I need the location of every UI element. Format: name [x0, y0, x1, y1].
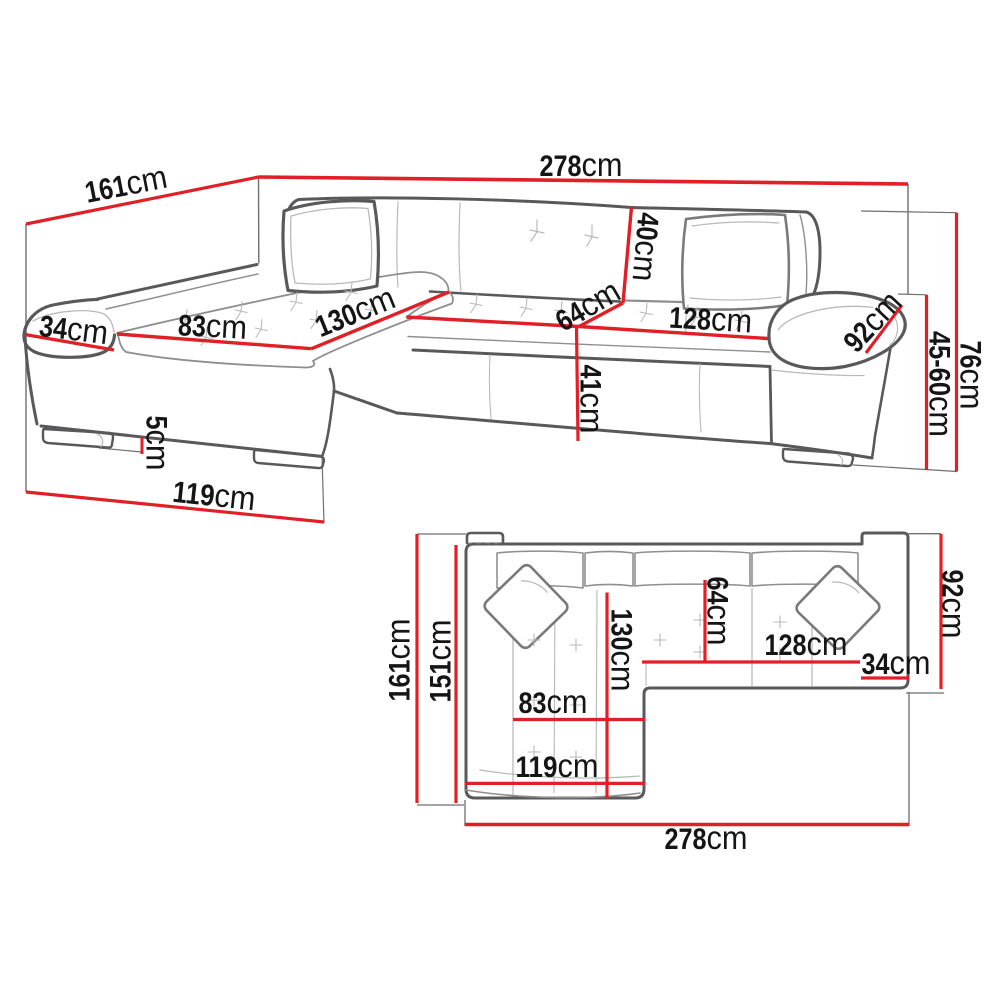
svg-text:119cm: 119cm	[516, 747, 599, 784]
svg-text:41cm: 41cm	[574, 365, 611, 434]
svg-text:278cm: 278cm	[665, 819, 748, 856]
svg-text:151cm: 151cm	[421, 620, 458, 703]
svg-text:5cm: 5cm	[140, 416, 177, 471]
svg-text:130cm: 130cm	[605, 609, 642, 692]
svg-text:64cm: 64cm	[701, 577, 738, 646]
svg-text:161cm: 161cm	[380, 619, 417, 702]
svg-text:128cm: 128cm	[668, 298, 753, 340]
svg-text:40cm: 40cm	[626, 211, 669, 283]
svg-text:45-60cm: 45-60cm	[923, 331, 960, 437]
svg-text:83cm: 83cm	[177, 305, 248, 346]
svg-text:92cm: 92cm	[936, 570, 973, 639]
svg-text:128cm: 128cm	[765, 625, 848, 662]
svg-text:278cm: 278cm	[540, 146, 623, 183]
svg-text:34cm: 34cm	[862, 644, 931, 681]
svg-text:83cm: 83cm	[519, 683, 588, 720]
